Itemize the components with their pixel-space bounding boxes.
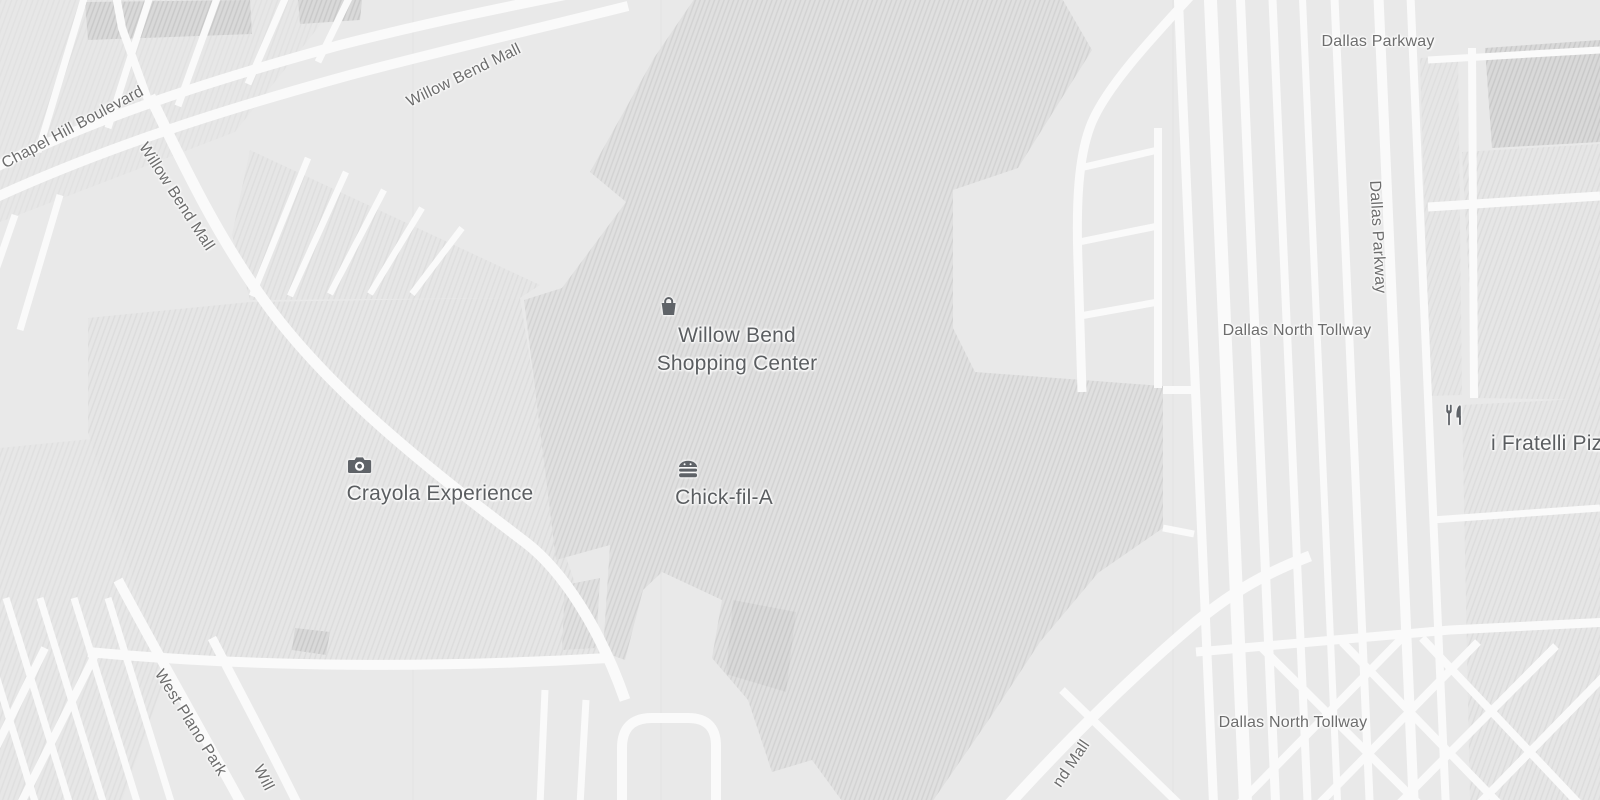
poi-label-line2[interactable]: Shopping Center — [657, 350, 818, 378]
restaurant-icon[interactable] — [1442, 403, 1600, 427]
poi-label-line1[interactable]: Willow Bend — [657, 322, 818, 350]
camera-icon[interactable] — [347, 453, 534, 477]
poi-i-fratelli-pizza[interactable]: i Fratelli Pizz — [1442, 403, 1600, 458]
poi-chick-fil-a[interactable]: Chick-fil-A — [675, 457, 773, 512]
poi-label[interactable]: i Fratelli Pizz — [1442, 430, 1600, 458]
poi-willow-bend-shopping-center[interactable]: Willow Bend Shopping Center — [657, 295, 818, 378]
burger-icon[interactable] — [675, 457, 773, 481]
poi-label[interactable]: Crayola Experience — [347, 480, 534, 508]
shopping-bag-icon[interactable] — [657, 295, 818, 319]
poi-label[interactable]: Chick-fil-A — [675, 484, 773, 512]
map-canvas[interactable] — [0, 0, 1600, 800]
map-viewport[interactable]: Chapel Hill Boulevard Willow Bend Mall W… — [0, 0, 1600, 800]
poi-crayola-experience[interactable]: Crayola Experience — [347, 453, 534, 508]
